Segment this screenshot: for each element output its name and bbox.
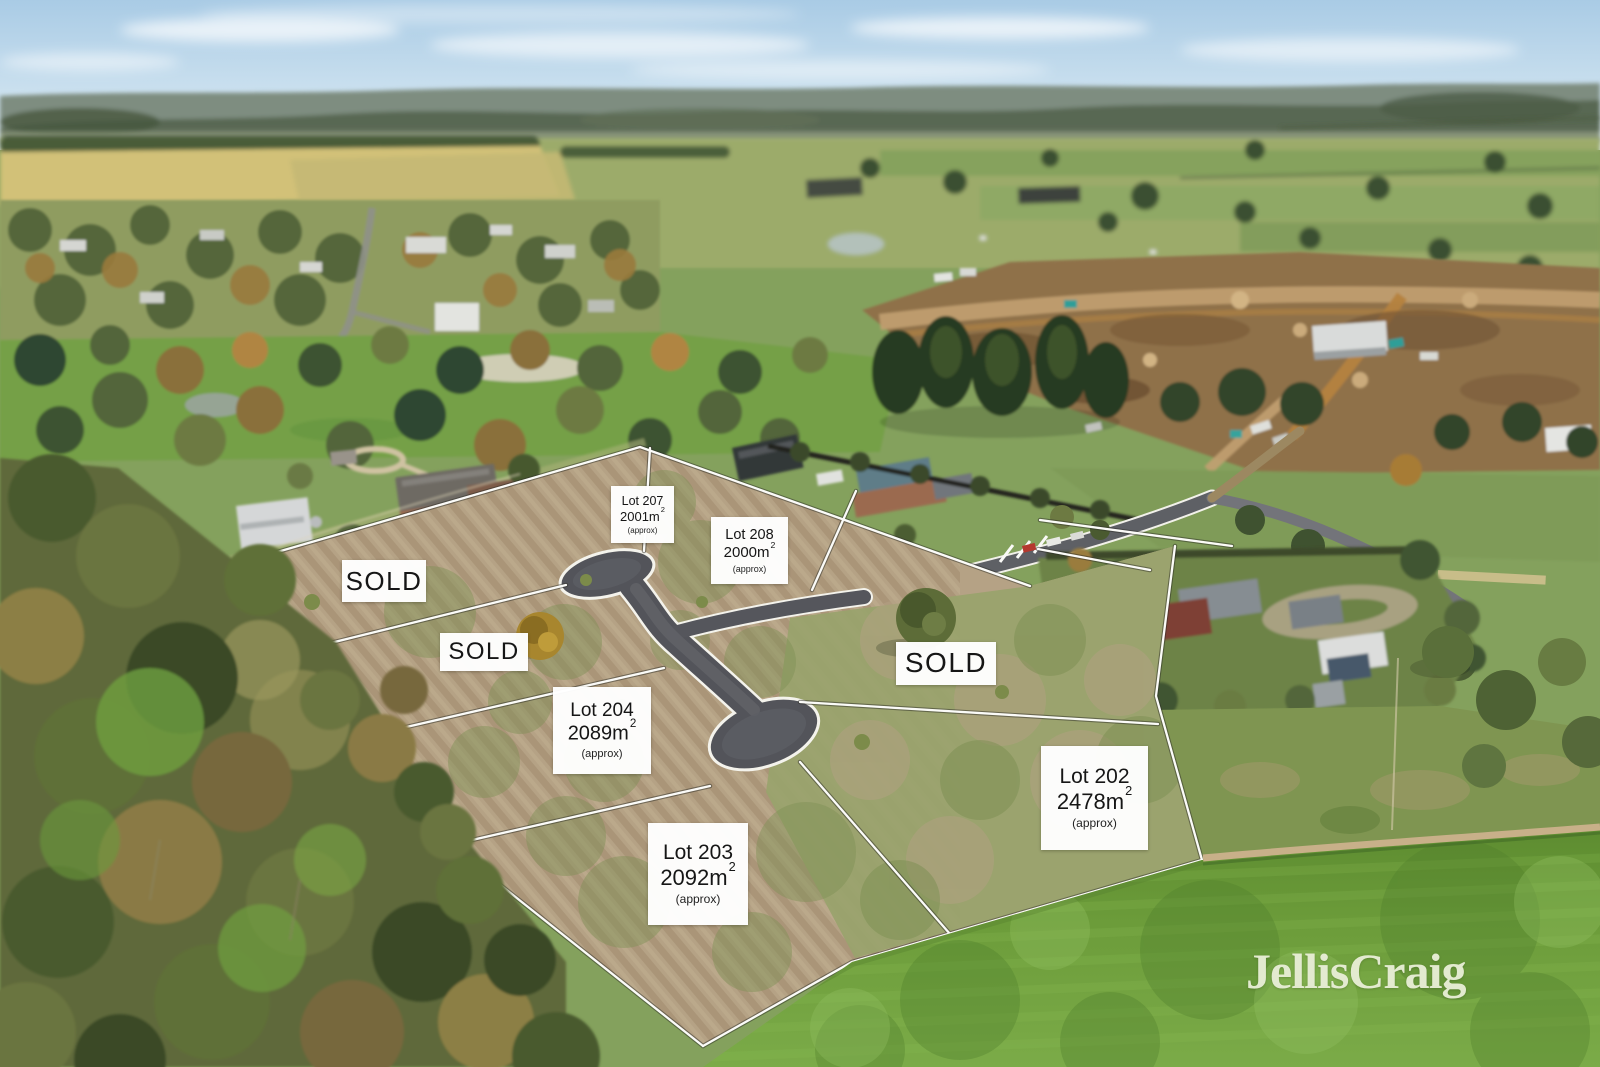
lot-name: Lot 202: [1059, 765, 1129, 789]
lot-202-label: Lot 202 2478m2 (approx): [1041, 746, 1148, 850]
lot-204-label: Lot 204 2089m2 (approx): [553, 687, 651, 774]
lot-area-qualifier: (approx): [733, 564, 767, 574]
lot-area: 2000m2: [724, 543, 776, 561]
lot-207-label: Lot 207 2001m2 (approx): [611, 486, 674, 543]
lot-area-sup: 2: [630, 717, 636, 730]
lot-area-value: 2089m: [568, 723, 629, 745]
lot-area-qualifier: (approx): [628, 526, 658, 535]
lot-area: 2089m2: [568, 722, 637, 746]
lot-area-sup: 2: [1125, 783, 1132, 798]
lot-area-qualifier: (approx): [582, 748, 623, 761]
lot-name: Lot 204: [570, 700, 633, 722]
sold-label-1: SOLD: [342, 560, 426, 602]
lot-area-value: 2001m: [620, 509, 660, 524]
lot-area-value: 2000m: [724, 544, 770, 561]
lot-name: Lot 208: [725, 527, 773, 544]
lot-area: 2001m2: [620, 509, 665, 524]
lot-name: Lot 203: [663, 841, 733, 865]
lot-area: 2092m2: [660, 865, 735, 891]
excavator: [1230, 430, 1242, 438]
lot-area-qualifier: (approx): [676, 893, 721, 907]
lot-area: 2478m2: [1057, 789, 1132, 815]
aerial-photo: [0, 0, 1600, 1067]
lot-area-sup: 2: [771, 540, 776, 550]
farm-dam: [828, 233, 884, 255]
sold-label-2: SOLD: [440, 633, 528, 671]
lot-area-qualifier: (approx): [1072, 817, 1117, 831]
sold-label-3: SOLD: [896, 642, 996, 685]
lot-name: Lot 207: [622, 494, 664, 509]
lot-208-label: Lot 208 2000m2 (approx): [711, 517, 788, 584]
lot-area-value: 2478m: [1057, 789, 1124, 814]
lot-area-value: 2092m: [660, 865, 727, 890]
lot-203-label: Lot 203 2092m2 (approx): [648, 823, 748, 925]
lot-area-sup: 2: [661, 505, 665, 514]
lot-area-sup: 2: [729, 859, 736, 874]
agency-watermark: JellisCraig: [1246, 942, 1466, 1000]
aerial-photo-frame: SOLD SOLD SOLD Lot 207 2001m2 (approx) L…: [0, 0, 1600, 1067]
excavator: [1064, 300, 1077, 308]
